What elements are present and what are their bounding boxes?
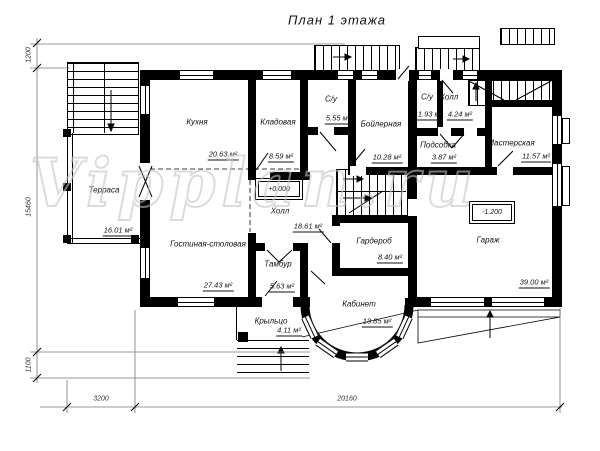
- room-label-hall1: Холл: [271, 207, 289, 216]
- room-area-pantry: 8.59 м²: [268, 152, 294, 163]
- deck-pilaster: [338, 70, 353, 80]
- room-label-porch: Крыльцо: [255, 317, 288, 326]
- garage-door: [431, 297, 484, 307]
- room-area-hall1: 18.61 м²: [293, 222, 324, 233]
- bay-window: [346, 353, 368, 362]
- deck-pilaster: [362, 70, 377, 80]
- room-label-utility: Подсобка: [420, 141, 456, 150]
- window-workshop-right: [552, 116, 562, 144]
- elevation-main-floor: +0.000: [258, 181, 300, 197]
- plan-title: План 1 этажа: [288, 13, 386, 28]
- window-garage-right: [552, 164, 562, 206]
- floor-plan-canvas: План 1 этажа Vipplan.ru: [0, 0, 600, 451]
- room-label-office: Кабинет: [342, 300, 376, 309]
- dim-bottom-small: 3200: [93, 396, 109, 403]
- room-label-hall2: Холл: [440, 93, 458, 102]
- room-label-living: Гостиная-столовая: [170, 240, 246, 249]
- deck-pilaster: [419, 70, 431, 80]
- dim-bottom-main: 20160: [337, 396, 356, 403]
- dim-left-main: 15460: [26, 197, 33, 216]
- ramp-group: [302, 310, 560, 343]
- window-pantry-top: [263, 70, 291, 80]
- room-area-wc2: 1.93 м²: [417, 110, 443, 121]
- window-sill-right: [562, 118, 570, 144]
- window-sill-right: [562, 166, 570, 206]
- garage-door: [492, 297, 544, 307]
- room-area-living: 27.43 м²: [203, 281, 234, 292]
- room-area-tambour: 5.63 м²: [269, 282, 295, 293]
- window-living-left: [140, 248, 150, 278]
- room-label-kitchen: Кухня: [186, 118, 207, 127]
- room-area-terrace: 16.01 м²: [103, 226, 134, 237]
- window-kitchen-top: [180, 70, 213, 80]
- room-label-terrace: Терраса: [89, 186, 120, 195]
- door-gaps-group: [139, 69, 513, 308]
- room-area-wc1: 5.55 м²: [325, 114, 351, 125]
- room-label-wardrobe: Гардероб: [356, 237, 391, 246]
- room-area-garage: 39.00 м²: [519, 278, 550, 289]
- room-area-office: 13.85 м²: [362, 317, 393, 328]
- dim-left-bottom: 1100: [26, 357, 33, 372]
- dashed-lines-group: [150, 169, 306, 232]
- room-area-utility: 3.87 м²: [431, 153, 457, 164]
- room-label-wc1: С/у: [325, 95, 337, 104]
- deck-b-outline: [418, 36, 480, 49]
- room-area-kitchen: 20.63 м²: [208, 150, 239, 161]
- deck-pilaster: [463, 70, 477, 80]
- room-label-boiler: Бойлерная: [361, 120, 402, 129]
- room-area-wardrobe: 8.40 м²: [377, 253, 403, 264]
- room-label-wc2: С/у: [421, 93, 433, 102]
- dim-left-top: 1200: [26, 47, 33, 63]
- window-kitchen-left: [140, 86, 150, 114]
- room-label-garage: Гараж: [477, 236, 500, 245]
- elevation-garage: -1.200: [472, 204, 512, 221]
- room-area-workshop: 11.57 м²: [521, 152, 551, 163]
- room-area-hall2: 4.24 м²: [447, 110, 473, 121]
- room-label-pantry: Кладовая: [260, 118, 295, 127]
- window-living-bottom: [178, 297, 214, 307]
- room-area-porch: 4.11 м²: [276, 326, 302, 337]
- room-label-workshop: Мастерская: [487, 139, 534, 148]
- room-area-boiler: 10.28 м²: [372, 153, 403, 164]
- room-label-tambour: Тамбур: [264, 260, 291, 269]
